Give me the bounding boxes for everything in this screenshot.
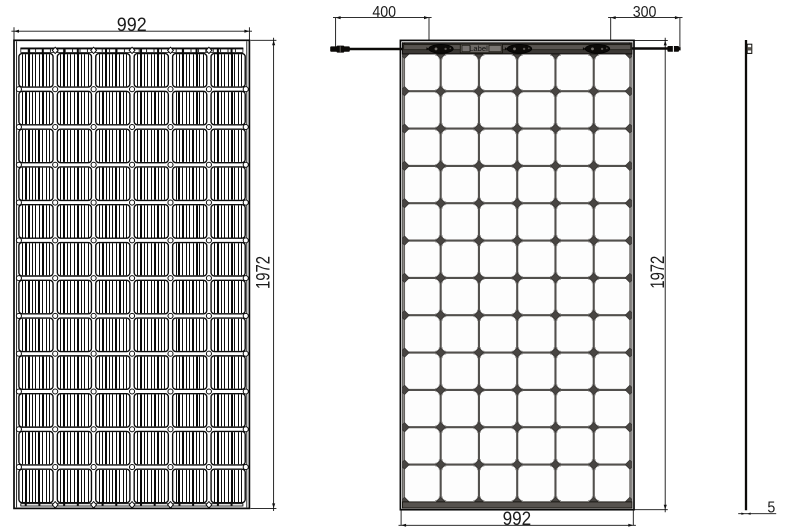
svg-text:300: 300 — [633, 3, 657, 21]
svg-text:Label: Label — [469, 44, 488, 53]
svg-text:992: 992 — [117, 13, 147, 35]
svg-text:1972: 1972 — [251, 256, 274, 289]
svg-text:1972: 1972 — [646, 256, 669, 289]
svg-text:5: 5 — [767, 499, 775, 517]
svg-text:400: 400 — [372, 3, 396, 21]
